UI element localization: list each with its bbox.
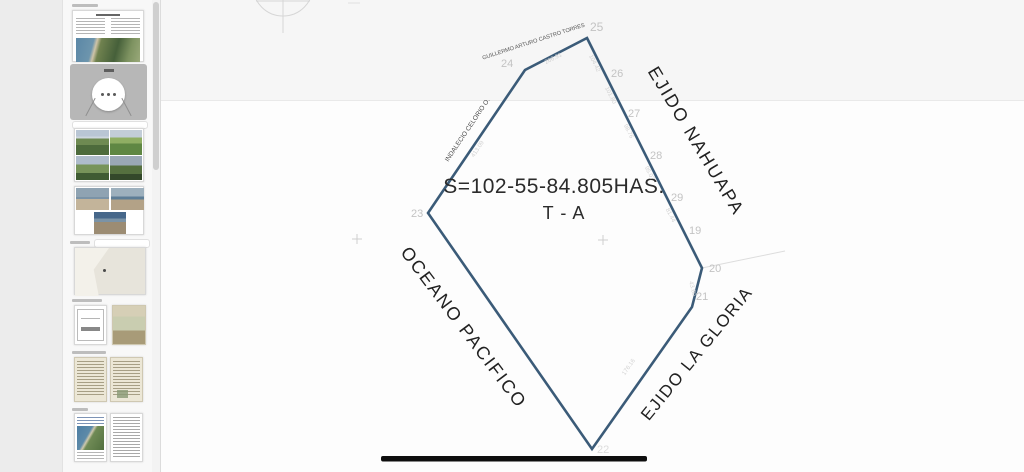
vertex-label: 24 bbox=[501, 58, 513, 70]
grid-cross-icon bbox=[352, 234, 608, 245]
doc-text-block bbox=[81, 327, 100, 331]
edge-length: 413.09 bbox=[471, 140, 487, 159]
doc-text-lines bbox=[81, 318, 100, 321]
thumb-caption bbox=[72, 299, 102, 302]
thumbnail-scanned-letter[interactable] bbox=[74, 357, 107, 402]
compass-icon bbox=[253, 0, 313, 33]
survey-plan-drawing: S=102-55-84.805HAS. T - A EJIDO NAHUAPA … bbox=[160, 0, 1024, 472]
cover-title-text bbox=[96, 14, 120, 16]
beach-photo bbox=[94, 212, 126, 234]
field-photo bbox=[110, 130, 143, 155]
thumbnail-location-map[interactable] bbox=[74, 247, 146, 295]
region-label-la-gloria: EJIDO LA GLORIA bbox=[637, 283, 756, 424]
letter-text-lines bbox=[77, 361, 104, 395]
parcel-lot-label: T - A bbox=[543, 203, 586, 223]
thumbnail-cover-page[interactable] bbox=[72, 10, 144, 62]
app-window: S=102-55-84.805HAS. T - A EJIDO NAHUAPA … bbox=[0, 0, 1024, 472]
vertex-label: 28 bbox=[650, 150, 662, 162]
thumbnail-document-white[interactable] bbox=[74, 305, 107, 345]
vertex-label: 23 bbox=[411, 208, 423, 220]
field-photo bbox=[76, 156, 109, 181]
thumbnail-report-page-photo[interactable] bbox=[74, 413, 107, 462]
document-border bbox=[77, 309, 104, 341]
beach-photo bbox=[111, 188, 144, 210]
thumbnail-plan-page-selected[interactable] bbox=[70, 64, 147, 120]
parcel-area-label: S=102-55-84.805HAS. bbox=[443, 175, 664, 198]
thumbnail-field-photos[interactable] bbox=[74, 128, 144, 182]
scale-bar bbox=[381, 456, 647, 462]
owner-label-top-edge: GUILLERMO ARTURO CASTRO TORRES bbox=[482, 23, 586, 62]
plan-preview-line bbox=[85, 98, 95, 116]
map-coastline bbox=[75, 248, 109, 296]
thumbnail-beach-photos[interactable] bbox=[74, 186, 144, 235]
thumbnail-document-aged[interactable] bbox=[112, 305, 146, 345]
loading-dots-icon bbox=[92, 78, 125, 111]
stamp-icon bbox=[117, 390, 128, 398]
thumb-caption bbox=[72, 4, 98, 7]
cover-text-lines bbox=[76, 18, 105, 36]
edge-length: 43.60 bbox=[687, 281, 697, 298]
document-page-view[interactable]: S=102-55-84.805HAS. T - A EJIDO NAHUAPA … bbox=[161, 0, 1024, 472]
report-aerial-photo bbox=[77, 426, 104, 450]
vertex-label: 26 bbox=[611, 68, 623, 80]
plan-preview-line bbox=[121, 98, 131, 116]
thumbnail-report-page-text[interactable] bbox=[110, 413, 143, 462]
vertex-label: 21 bbox=[696, 291, 708, 303]
vertex-label: 29 bbox=[671, 192, 683, 204]
thumbnail-scanned-letter[interactable] bbox=[110, 357, 143, 402]
report-heading-lines bbox=[77, 417, 104, 424]
map-marker-icon bbox=[103, 269, 106, 272]
vertex-label: 25 bbox=[590, 20, 604, 34]
field-photo bbox=[110, 156, 143, 181]
edge-length: 176.16 bbox=[621, 358, 637, 377]
field-photo bbox=[76, 130, 109, 155]
sidebar-scrollbar-thumb[interactable] bbox=[153, 2, 159, 170]
cover-text-lines bbox=[111, 18, 140, 36]
thumbnail-sidebar bbox=[0, 0, 160, 472]
vertex-label: 22 bbox=[597, 444, 609, 456]
thumb-caption bbox=[72, 351, 106, 354]
vertex-label: 19 bbox=[689, 225, 701, 237]
thumb-caption bbox=[72, 408, 88, 411]
beach-photo bbox=[76, 188, 109, 210]
vertex-label: 20 bbox=[709, 263, 721, 275]
vertex-label: 27 bbox=[628, 108, 640, 120]
region-label-oceano-pacifico: OCEANO PACIFICO bbox=[397, 243, 531, 412]
thumb-caption bbox=[70, 241, 90, 244]
report-text-lines bbox=[77, 452, 104, 460]
thumb-page-label bbox=[104, 69, 114, 72]
report-text-lines bbox=[113, 417, 140, 458]
cover-aerial-photo bbox=[76, 38, 140, 62]
